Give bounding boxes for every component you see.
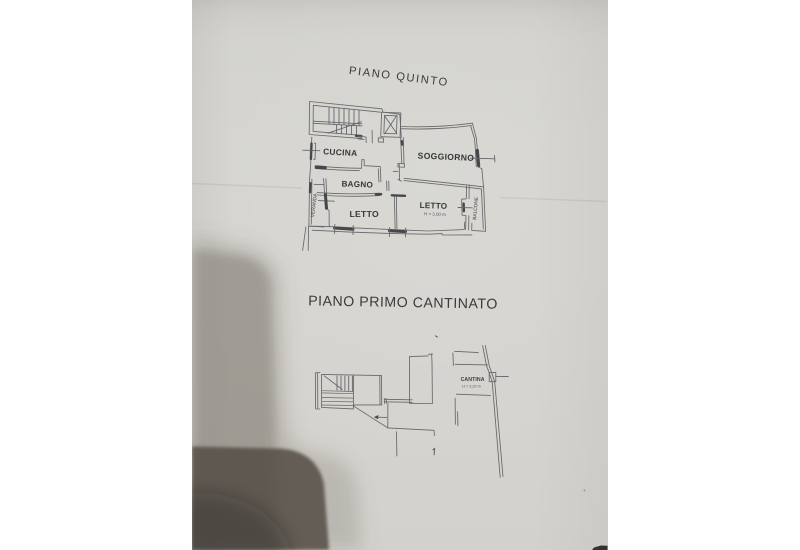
svg-text:LETTO: LETTO (349, 209, 379, 219)
svg-text:BAGNO: BAGNO (341, 179, 373, 189)
svg-text:H = 3,00 m: H = 3,00 m (424, 211, 446, 217)
svg-text:PIANO QUINTO: PIANO QUINTO (348, 65, 449, 89)
svg-text:H = 2,20 m: H = 2,20 m (462, 385, 481, 389)
svg-text:LETTO: LETTO (419, 201, 447, 211)
svg-text:BALCONE: BALCONE (472, 197, 480, 220)
svg-text:CANTINA: CANTINA (461, 377, 485, 383)
svg-text:PIANO PRIMO CANTINATO: PIANO PRIMO CANTINATO (308, 293, 498, 312)
svg-text:SOGGIORNO: SOGGIORNO (417, 150, 474, 162)
svg-text:CUCINA: CUCINA (323, 146, 358, 158)
